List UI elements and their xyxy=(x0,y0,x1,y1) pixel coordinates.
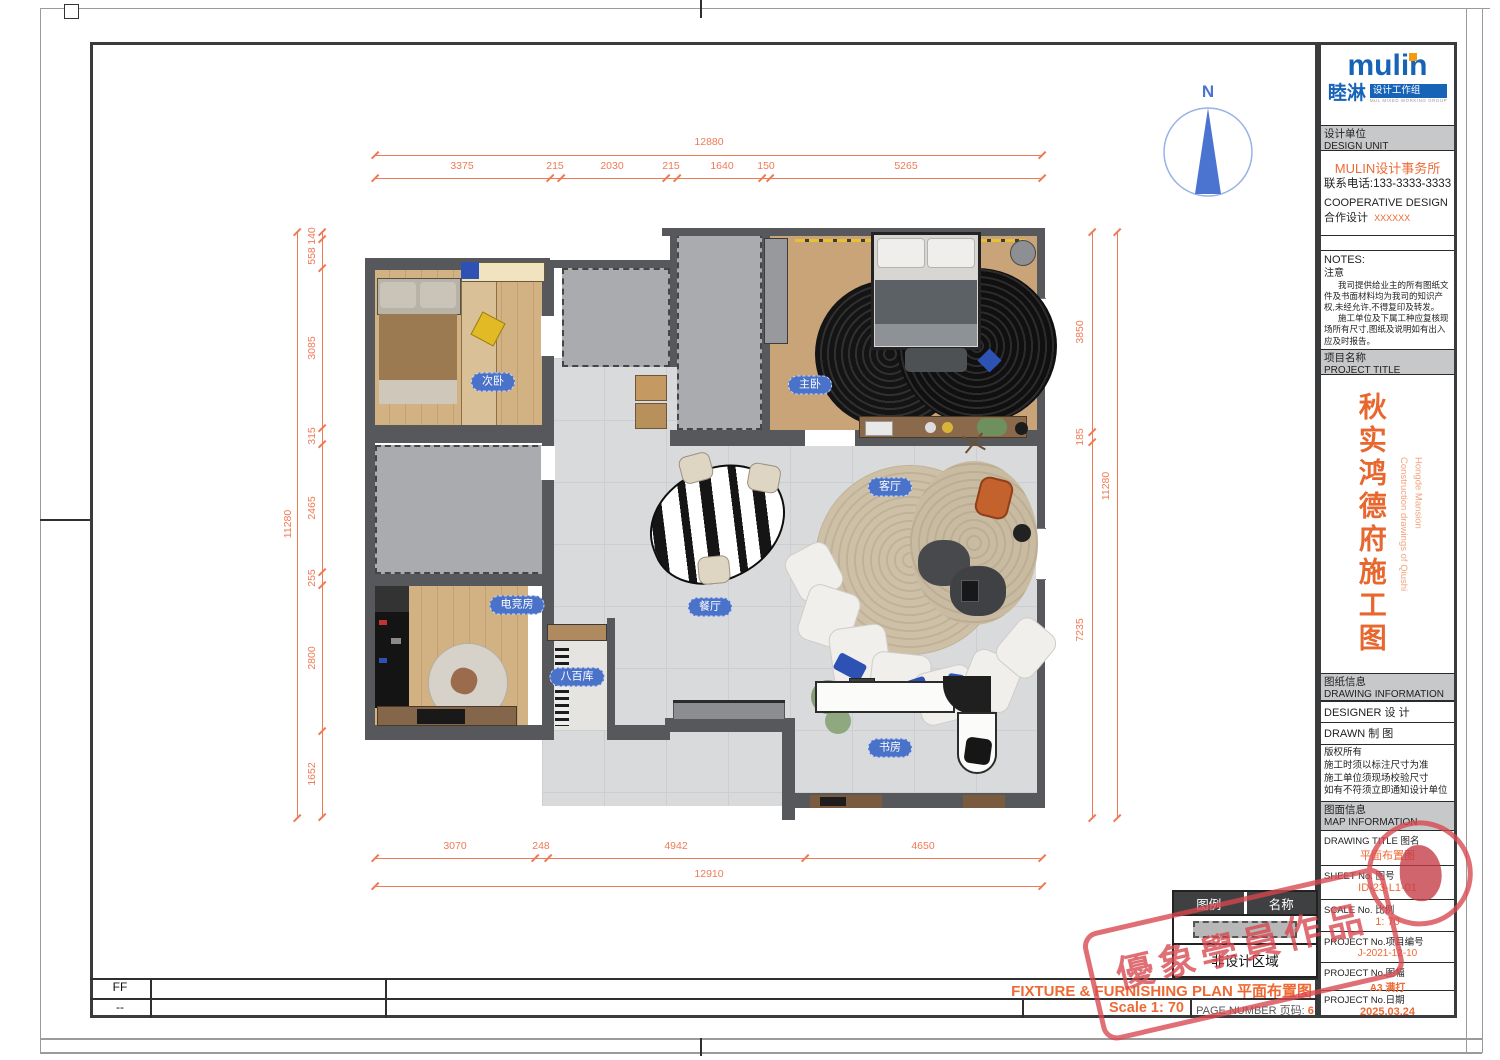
scale-value: Scale 1: 70 xyxy=(1024,1000,1184,1016)
gaming-item xyxy=(391,638,401,644)
wall xyxy=(607,725,670,740)
brand-wordmark: mulin xyxy=(1321,51,1454,81)
cabinet-blue xyxy=(461,262,479,279)
wall xyxy=(782,718,795,820)
title-block: mulin 睦淋 设计工作组 MUL MIXED WORKING GROUP 设… xyxy=(1318,42,1457,1018)
wall xyxy=(365,425,550,443)
drawing-title-row: DRAWING TITLE 图名 平面布置图 xyxy=(1321,831,1454,866)
coop-design: COOPERATIVE DESIGN 合作设计 XXXXXX xyxy=(1321,195,1454,235)
dim-value: 2800 xyxy=(306,646,318,669)
wall xyxy=(670,232,677,367)
paper-size-label: PROJECT No.图幅 xyxy=(1324,965,1451,979)
dining-chair xyxy=(697,555,731,586)
master-blanket xyxy=(875,280,977,326)
project-title-en2: Hongde Mansion xyxy=(1410,457,1424,591)
dim-value: 248 xyxy=(532,840,550,852)
dim-line xyxy=(375,886,1042,887)
revision-cell-ff: FF xyxy=(90,980,150,998)
corner-mark xyxy=(64,4,79,19)
dim-value: 215 xyxy=(662,160,680,172)
study-desk xyxy=(815,681,955,713)
drawing-title-label: DRAWING TITLE 图名 xyxy=(1324,833,1451,847)
legend-header-symbol: 图例 xyxy=(1174,892,1244,914)
dim-value: 255 xyxy=(306,569,318,587)
notes-area: NOTES: 注意 我司提供给业主的所有图纸文件及书面材料均为我司的知识产权,未… xyxy=(1321,251,1454,349)
master-pillow xyxy=(877,238,925,268)
brand-wordmark-dot xyxy=(1409,53,1417,61)
cabinet-item xyxy=(417,709,465,724)
page-number: PAGE NUMBER 页码: 6 xyxy=(1194,1002,1316,1018)
brand-group: 设计工作组 xyxy=(1370,84,1447,98)
dim-value: 315 xyxy=(306,427,318,445)
floor-plan: 次卧 主卧 客厅 餐厅 电竞房 八百库 书房 xyxy=(365,228,1045,820)
room-label-bedroom2: 次卧 xyxy=(471,373,515,392)
dim-value: 215 xyxy=(546,160,564,172)
door-opening xyxy=(541,316,555,356)
dim-value: 3085 xyxy=(306,336,318,359)
closet-column xyxy=(461,282,497,425)
copyright-area: 版权所有 施工时须以标注尺寸为准 施工单位须现场校验尺寸 如有不符须立即通知设计… xyxy=(1321,745,1454,801)
bed2-pillow xyxy=(380,282,416,308)
spacer-band xyxy=(1321,235,1454,251)
project-title-cn: 秋实鸿德府施工图 xyxy=(1351,392,1391,656)
coop-design-cn: 合作设计 xyxy=(1324,212,1368,224)
legend-header-name: 名称 xyxy=(1247,892,1317,914)
side-table xyxy=(1013,524,1031,542)
brand-name-cn: 睦淋 xyxy=(1328,84,1366,103)
sheet-no-row: SHEET No. 图号 ID-23-L1-01 xyxy=(1321,866,1454,900)
notes-line1: 我司提供给业主的所有图纸文件及书面材料均为我司的知识产权,未经允许,不得复印及转… xyxy=(1324,280,1451,313)
dim-line xyxy=(375,155,1042,156)
dim-value: 4650 xyxy=(911,840,934,852)
north-compass: N xyxy=(1158,82,1258,200)
outer-frame-right1 xyxy=(1466,8,1467,1053)
gaming-desk-top xyxy=(375,586,409,612)
copyright-line: 版权所有 xyxy=(1324,747,1451,760)
footer-divider xyxy=(150,978,152,1018)
project-title-header-cn: 项目名称 xyxy=(1324,352,1451,365)
wall xyxy=(365,725,545,740)
designer-row: DESIGNER 设 计 xyxy=(1321,701,1454,723)
project-title-area: 秋实鸿德府施工图 Construction drawings of Qiushi… xyxy=(1321,375,1454,673)
project-no-value: J-2021-12-10 xyxy=(1324,948,1451,959)
notes-header-cn: 注意 xyxy=(1324,267,1451,280)
drawing-info-header: 图纸信息 DRAWING INFORMATION xyxy=(1321,673,1454,701)
outer-frame-left xyxy=(40,8,41,1053)
dim-value: 7235 xyxy=(1074,618,1086,641)
scale-label: SCALE No. 比例 xyxy=(1324,902,1451,916)
dim-value: 12880 xyxy=(694,136,723,148)
coop-design-en: COOPERATIVE DESIGN xyxy=(1324,197,1451,209)
dim-value: 5265 xyxy=(894,160,917,172)
dim-value: 4942 xyxy=(664,840,687,852)
project-title-en1: Construction drawings of Qiushi xyxy=(1396,457,1410,591)
bed-bench xyxy=(905,348,967,372)
date-label: PROJECT No.日期 xyxy=(1324,992,1451,1006)
wall xyxy=(375,574,550,586)
speaker xyxy=(1015,422,1028,435)
entry-cabinet xyxy=(635,375,667,401)
edge-tick-left xyxy=(40,519,90,521)
pantry-shelves xyxy=(555,648,569,726)
brand-area: mulin 睦淋 设计工作组 MUL MIXED WORKING GROUP xyxy=(1321,45,1454,125)
compass-icon xyxy=(1158,82,1258,200)
pantry-cabinet xyxy=(547,624,607,641)
non-design-swatch xyxy=(1193,921,1297,938)
room-label-dining: 餐厅 xyxy=(688,598,732,617)
project-no-row: PROJECT No.项目编号 J-2021-12-10 xyxy=(1321,932,1454,963)
dim-line xyxy=(375,178,1042,179)
sheet-no-label: SHEET No. 图号 xyxy=(1324,868,1451,882)
room-label-study: 书房 xyxy=(868,739,912,758)
nightstand xyxy=(1010,240,1036,266)
room-label-pantry: 八百库 xyxy=(550,668,605,687)
door-opening xyxy=(541,446,555,480)
dim-value: 1652 xyxy=(306,762,318,785)
dim-line xyxy=(375,858,1042,859)
gaming-item xyxy=(379,658,387,663)
sheet-no-value: ID-23-L1-01 xyxy=(1324,882,1451,894)
bed2-pillow xyxy=(420,282,456,308)
project-title-header: 项目名称 PROJECT TITLE xyxy=(1321,349,1454,375)
dim-value: 2030 xyxy=(600,160,623,172)
room-label-living: 客厅 xyxy=(868,478,912,497)
outer-frame-top xyxy=(40,8,1490,9)
dim-value: 12910 xyxy=(694,868,723,880)
door-opening xyxy=(805,430,855,446)
cabinet-item xyxy=(820,797,846,806)
map-info-header-cn: 图面信息 xyxy=(1324,804,1451,817)
drawing-info-header-en: DRAWING INFORMATION xyxy=(1324,689,1451,701)
console-item xyxy=(865,421,893,436)
entry-cabinet xyxy=(635,403,667,429)
room-label-master: 主卧 xyxy=(788,376,832,395)
coop-design-value: XXXXXX xyxy=(1374,213,1410,223)
outer-frame-bottom2 xyxy=(40,1052,1482,1054)
dim-value: 3375 xyxy=(450,160,473,172)
room-label-esports: 电竞房 xyxy=(490,596,545,615)
outer-frame-right2 xyxy=(1482,8,1483,1053)
dim-line xyxy=(1092,232,1093,818)
design-unit-header: 设计单位 DESIGN UNIT xyxy=(1321,125,1454,151)
dim-value: 11280 xyxy=(1100,472,1112,500)
footer-divider xyxy=(1190,998,1192,1018)
design-unit-header-cn: 设计单位 xyxy=(1324,128,1451,141)
brand-tagline: MUL MIXED WORKING GROUP xyxy=(1370,98,1447,103)
revision-cell-dash: -- xyxy=(90,1000,150,1018)
dining-chair xyxy=(746,461,782,494)
wall xyxy=(545,260,677,268)
map-info-header: 图面信息 MAP INFORMATION xyxy=(1321,801,1454,831)
paper-size-row: PROJECT No.图幅 A3 满打 xyxy=(1321,963,1454,991)
console-item xyxy=(925,422,936,433)
master-bed-foot xyxy=(875,324,977,346)
copyright-line: 施工单位须现场校验尺寸 xyxy=(1324,773,1451,786)
dim-value: 3850 xyxy=(1074,320,1086,343)
date-value: 2025.03.24 xyxy=(1324,1006,1451,1018)
copyright-line: 施工时须以标注尺寸为准 xyxy=(1324,760,1451,773)
bed2-blanket xyxy=(379,314,457,382)
footer-divider xyxy=(385,978,387,1018)
drawing-info-header-cn: 图纸信息 xyxy=(1324,676,1451,689)
drawn-row: DRAWN 制 图 xyxy=(1321,723,1454,745)
edge-tick-bottom xyxy=(700,1038,702,1056)
dim-value: 140 xyxy=(306,227,318,245)
bench-seat xyxy=(673,703,785,719)
outer-frame-bottom1 xyxy=(40,1038,1482,1040)
page-number-label: PAGE NUMBER 页码: xyxy=(1196,1005,1305,1017)
dim-value: 1640 xyxy=(710,160,733,172)
desk-chair xyxy=(963,736,992,765)
non-design-area-stair xyxy=(677,232,762,430)
wall xyxy=(365,258,375,740)
wall xyxy=(665,718,795,732)
design-firm: MULIN设计事务所 xyxy=(1321,151,1454,175)
project-no-label: PROJECT No.项目编号 xyxy=(1324,934,1451,948)
page-number-value: 6 xyxy=(1308,1005,1314,1017)
dim-value: 185 xyxy=(1074,428,1086,446)
dim-value: 3070 xyxy=(443,840,466,852)
dim-line xyxy=(1117,232,1118,818)
legend-name-row: 非设计区域 xyxy=(1174,945,1316,975)
gaming-item xyxy=(379,620,387,625)
wall xyxy=(662,228,1045,236)
dim-value: 2465 xyxy=(306,496,318,519)
map-info-header-en: MAP INFORMATION xyxy=(1324,817,1451,829)
master-pillow xyxy=(927,238,975,268)
wall xyxy=(607,618,615,740)
date-row: PROJECT No.日期 2025.03.24 xyxy=(1321,991,1454,1017)
scale-row: SCALE No. 比例 1: 70 xyxy=(1321,900,1454,932)
copyright-line: 如有不符须立即通知设计单位 xyxy=(1324,785,1451,798)
non-design-area-mid xyxy=(562,268,670,367)
dim-value: 150 xyxy=(757,160,775,172)
drawing-sheet: 次卧 主卧 客厅 餐厅 电竞房 八百库 书房 12880 3375 215 20… xyxy=(0,0,1500,1060)
dim-line xyxy=(297,232,298,818)
contact-phone: 联系电话:133-3333-3333 xyxy=(1321,175,1454,195)
dim-value: 11280 xyxy=(282,510,294,538)
legend-swatch-row xyxy=(1174,914,1316,945)
notes-header-en: NOTES: xyxy=(1324,253,1451,267)
master-wardrobe xyxy=(764,238,788,344)
notes-line2: 施工单位及下属工种应复核现场所有尺寸,图纸及说明如有出入应及时报告。 xyxy=(1324,313,1451,346)
non-design-area-left xyxy=(375,445,548,574)
bed2-foot xyxy=(379,380,457,404)
console-item xyxy=(942,422,953,433)
scale-row-value: 1: 70 xyxy=(1324,916,1451,928)
plan-title: FIXTURE & FURNISHING PLAN 平面布置图 xyxy=(690,980,1312,1001)
coffee-table-tray xyxy=(961,580,979,602)
project-title-en: Construction drawings of Qiushi Hongde M… xyxy=(1396,457,1425,591)
dim-value: 558 xyxy=(306,247,318,265)
drawing-title-value: 平面布置图 xyxy=(1324,847,1451,863)
bottom-cabinet xyxy=(963,795,1005,808)
legend-table: 图例 名称 非设计区域 xyxy=(1172,890,1318,978)
edge-tick-top xyxy=(700,0,702,18)
